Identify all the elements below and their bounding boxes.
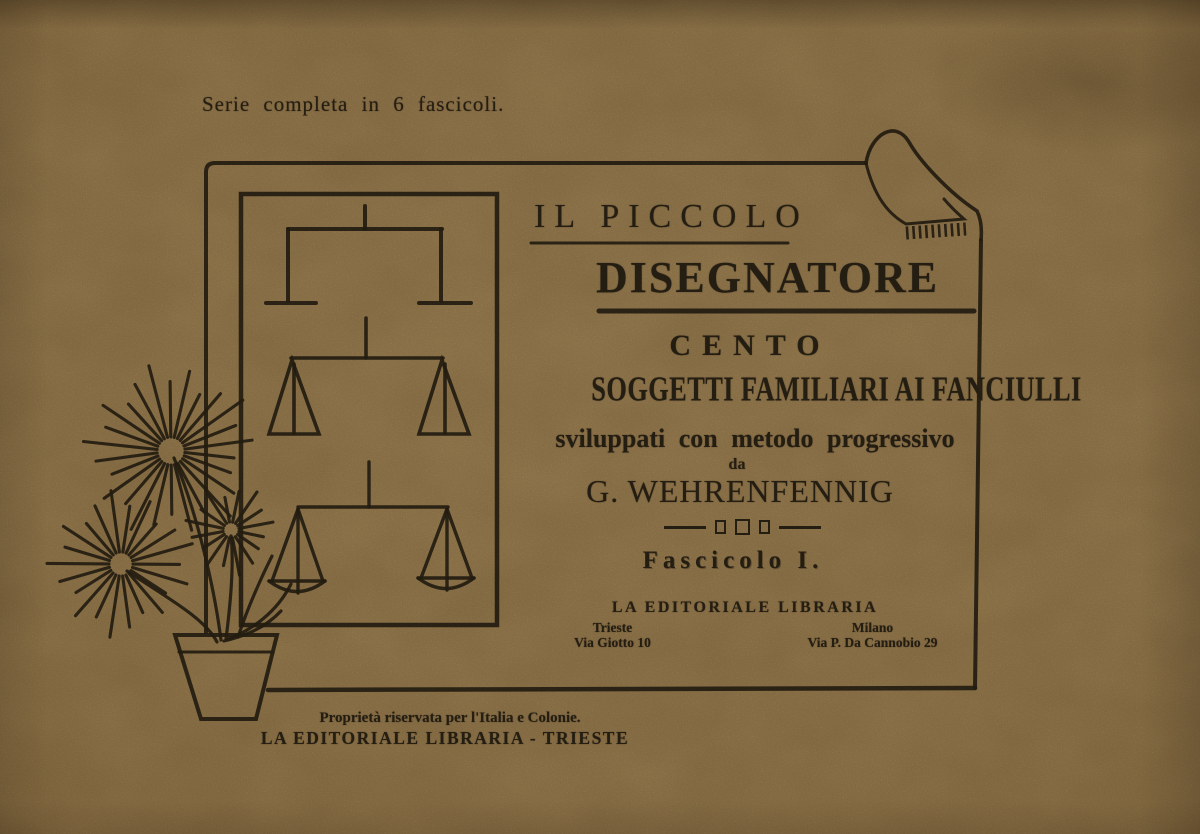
ornament-square-large: [735, 519, 750, 535]
office-milano-city: Milano: [790, 620, 955, 635]
publisher-name: LA EDITORIALE LIBRARIA: [545, 599, 945, 617]
series-note: Serie completa in 6 fascicoli.: [202, 92, 504, 117]
subtitle-subjects: SOGGETTI FAMILIARI AI FANCIULLI: [530, 372, 1010, 409]
office-trieste: Trieste Via Giotto 10: [540, 620, 685, 650]
ornament-dash-left: [664, 526, 706, 529]
curl-fringe: [906, 229, 966, 233]
issue-label: Fascicolo I.: [533, 547, 933, 575]
plant-stems: [127, 458, 291, 642]
subtitle-subjects-text: SOGGETTI FAMILIARI AI FANCIULLI: [591, 371, 1081, 410]
book-cover-photo: Serie completa in 6 fascicoli. IL PICCOL…: [0, 0, 1200, 834]
subtitle-count: CENTO: [540, 329, 960, 363]
title-line-2: DISEGNATORE: [596, 252, 939, 303]
byline-prefix: da: [537, 456, 937, 474]
balance-scale-step-3: [269, 462, 474, 593]
ornament-dash-right: [779, 526, 821, 529]
office-trieste-city: Trieste: [540, 620, 685, 635]
subtitle-method: sviluppati con metodo progressivo: [535, 424, 975, 454]
ornament-divider: [542, 519, 942, 535]
flower-pot: [175, 635, 277, 719]
author-name: G. WEHRENFENNIG: [540, 473, 940, 510]
imprint-line: LA EDITORIALE LIBRARIA - TRIESTE: [245, 728, 645, 749]
title-line-1: IL PICCOLO: [534, 198, 809, 236]
office-milano-address: Via P. Da Cannobio 29: [790, 635, 955, 650]
balance-scale-step-1: [266, 206, 471, 303]
office-trieste-address: Via Giotto 10: [540, 635, 685, 650]
rights-notice: Proprietà riservata per l'Italia e Colon…: [250, 710, 650, 727]
page-curl-corner: [866, 131, 981, 240]
cover-line-art: [0, 0, 1200, 834]
ornament-square-small-right: [759, 520, 770, 534]
balance-scale-step-2: [269, 318, 469, 434]
ornament-square-small-left: [715, 520, 726, 534]
office-milano: Milano Via P. Da Cannobio 29: [790, 620, 955, 650]
